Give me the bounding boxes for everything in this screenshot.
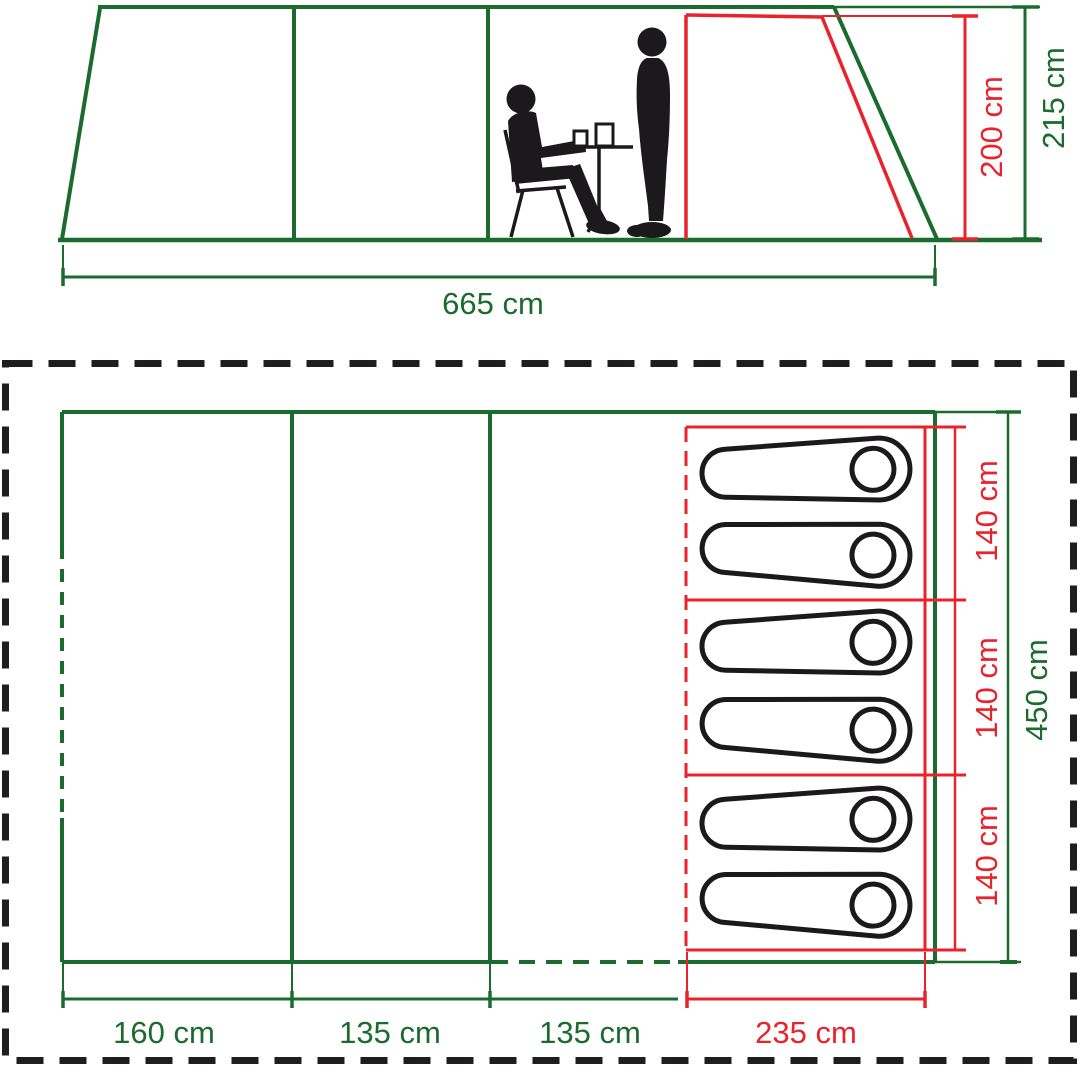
total-depth-label: 450 cm bbox=[1019, 639, 1054, 741]
standing-person-silhouette bbox=[627, 28, 671, 239]
sleeping-bag-icon bbox=[701, 694, 911, 763]
dimension-bottom-green: 160 cm 135 cm 135 cm bbox=[63, 964, 678, 1050]
sleeping-bag-icon bbox=[701, 610, 911, 680]
dimension-bedroom-sections: 140 cm 140 cm 140 cm bbox=[955, 427, 1004, 950]
outer-height-label: 215 cm bbox=[1036, 47, 1071, 149]
floor-plan-view: 140 cm 140 cm 140 cm 450 cm 160 cm 135 c… bbox=[6, 364, 1074, 1061]
sleeping-bag-icon bbox=[701, 869, 911, 938]
inner-tent-red-outline bbox=[686, 15, 954, 239]
dimension-inner-height: 200 cm bbox=[952, 16, 1009, 239]
section-label-1: 140 cm bbox=[969, 460, 1004, 562]
dimension-bottom-red: 235 cm bbox=[687, 952, 925, 1050]
elevation-view: 200 cm 215 cm 665 cm bbox=[58, 7, 1071, 321]
section-label-2: 140 cm bbox=[969, 637, 1004, 739]
inner-height-label: 200 cm bbox=[974, 76, 1009, 178]
segment-label-3: 135 cm bbox=[539, 1015, 641, 1050]
seated-person-silhouette bbox=[505, 85, 621, 238]
segment-label-4: 235 cm bbox=[755, 1015, 857, 1050]
segment-label-1: 160 cm bbox=[113, 1015, 215, 1050]
tent-side-outline bbox=[58, 7, 1042, 240]
groundsheet-dashed-border bbox=[6, 364, 1074, 1061]
bedroom-red-outline bbox=[686, 427, 966, 950]
cup-icon bbox=[574, 131, 587, 146]
sleeping-bag-icon bbox=[701, 787, 911, 857]
tent-dimensions-diagram: 200 cm 215 cm 665 cm bbox=[0, 0, 1078, 1071]
sleeping-bag-icon bbox=[701, 437, 911, 507]
dimension-outer-height: 215 cm bbox=[1012, 7, 1071, 239]
diagram-canvas: 200 cm 215 cm 665 cm bbox=[0, 0, 1078, 1071]
segment-label-2: 135 cm bbox=[339, 1015, 441, 1050]
total-width-label: 665 cm bbox=[442, 286, 544, 321]
dimension-total-width: 665 cm bbox=[63, 245, 935, 321]
section-label-3: 140 cm bbox=[969, 805, 1004, 907]
sleeping-bag-icon bbox=[701, 519, 911, 588]
dimension-total-depth: 450 cm bbox=[996, 412, 1054, 962]
sleeping-bags bbox=[701, 437, 911, 937]
mug-icon bbox=[596, 124, 613, 146]
